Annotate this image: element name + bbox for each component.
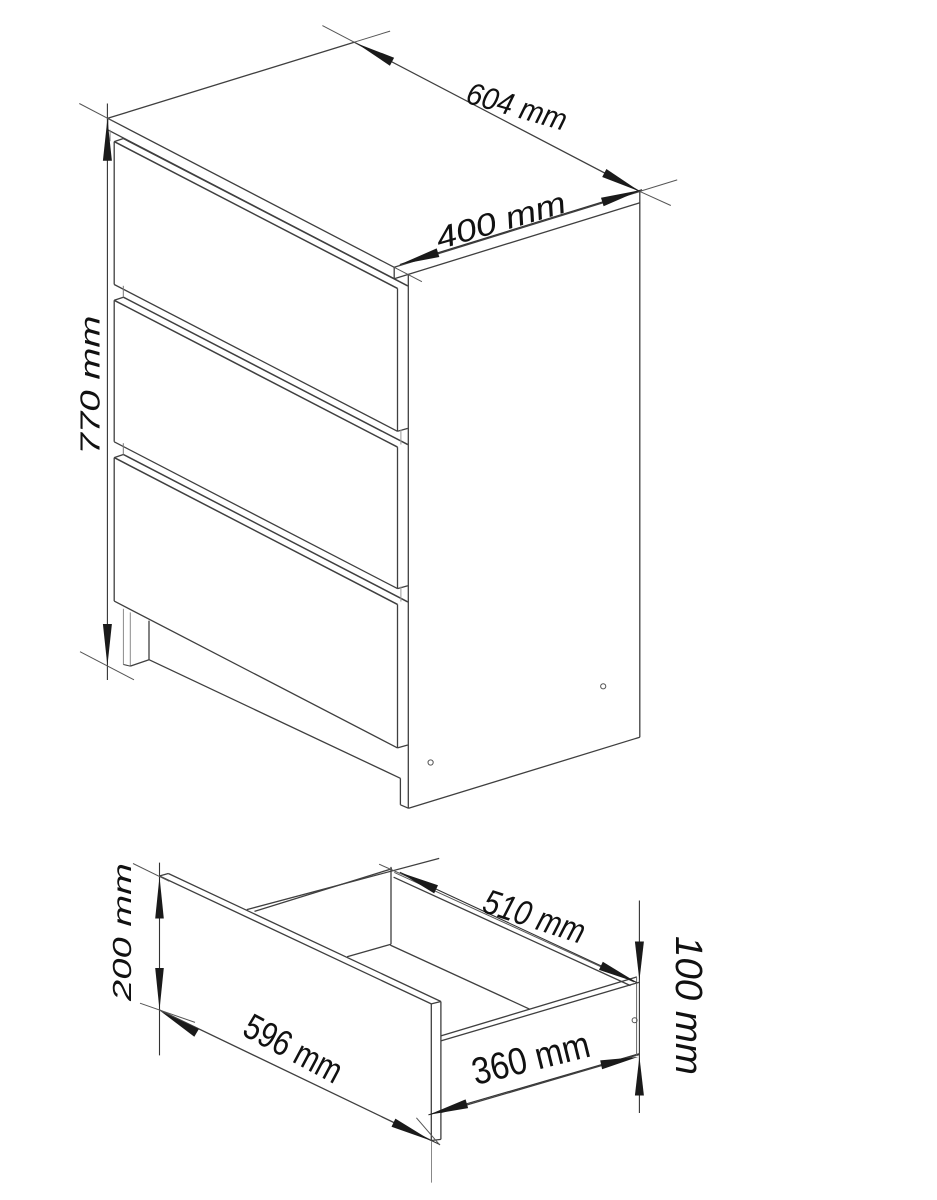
svg-text:100 mm: 100 mm: [667, 936, 709, 1075]
svg-text:200 mm: 200 mm: [107, 863, 137, 1002]
svg-text:770 mm: 770 mm: [74, 316, 105, 455]
